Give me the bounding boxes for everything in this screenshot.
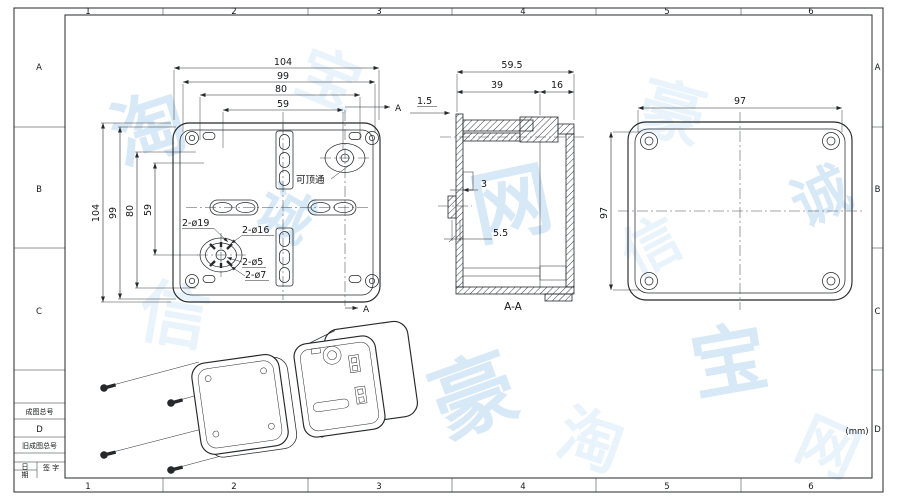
dim-depth-lid: 16 [551, 80, 563, 91]
dim-width-slots: 59 [277, 99, 289, 110]
zone-col-label: 5 [664, 7, 669, 17]
title-block-signature-label: 签 字 [43, 463, 59, 472]
lid-3d [190, 352, 298, 460]
zone-row-label: D [874, 425, 881, 435]
zone-col-label: 3 [376, 482, 381, 492]
zone-ticks-top [163, 8, 741, 15]
zone-col-label: 6 [808, 7, 813, 17]
knockout-note-label: 可顶通 [296, 175, 325, 186]
section-walls [448, 114, 574, 301]
zone-row-label: A [36, 63, 42, 73]
box-3d [291, 320, 420, 440]
zone-col-label: 2 [231, 482, 236, 492]
dim-height-inner: 80 [125, 205, 136, 217]
zone-ticks-sides [14, 127, 883, 370]
dim-back-width: 97 [734, 96, 746, 107]
hole-callout-d7: 2-ø7 [245, 270, 266, 281]
zone-row-label: C [875, 307, 881, 317]
back-view-centerlines [618, 112, 862, 310]
hole-callout-d16: 2-ø16 [242, 225, 269, 236]
title-block-final-no-label: 成图总号 [26, 407, 54, 416]
dim-height-screws: 99 [108, 207, 119, 219]
back-view: 97 97 [599, 96, 862, 310]
section-arrow-label-bottom: A [363, 305, 370, 315]
zone-row-label: A [875, 63, 881, 73]
zone-col-label: 4 [520, 482, 525, 492]
dim-width-inner: 80 [275, 84, 287, 95]
cable-slot-strips [276, 131, 293, 286]
front-view: 可顶通 2-ø19 2-ø16 2-ø5 2-ø7 A [91, 57, 402, 315]
dim-clip: 5.5 [493, 228, 508, 239]
zone-col-label: 1 [85, 482, 90, 492]
dim-height-slots: 59 [143, 204, 154, 216]
dim-depth-body: 39 [491, 80, 503, 91]
title-block-date-label-1: 日 [22, 463, 29, 471]
dim-step: 3 [481, 179, 487, 190]
units-note: (mm) [845, 427, 868, 437]
zone-ticks-bottom [163, 478, 741, 492]
section-view-label: A-A [504, 301, 523, 313]
dim-height-overall: 104 [91, 204, 102, 222]
dim-width-screws: 99 [277, 71, 289, 82]
isometric-exploded-view [99, 320, 420, 475]
zone-col-label: 5 [664, 482, 669, 492]
section-interior-lines [463, 142, 566, 287]
front-view-centerlines [186, 124, 371, 300]
drawing-sheet: 淘 宝 网 豪 诚 信 豪 淘 宝 网 诚 信 [0, 0, 900, 500]
zone-row-label: B [875, 185, 881, 195]
section-arrow-label-top: A [395, 104, 402, 114]
front-view-dims-top: 104 99 80 59 [174, 57, 379, 150]
sheet-frame: 1 2 3 4 5 6 1 2 3 4 5 6 A B C A B C D (m… [14, 7, 883, 492]
title-block: 成图总号 D 旧成图总号 日 期 签 字 [14, 403, 65, 479]
front-view-dims-left: 104 99 80 59 [91, 123, 204, 302]
cad-drawing: 1 2 3 4 5 6 1 2 3 4 5 6 A B C A B C D (m… [0, 0, 900, 500]
section-view: 59.5 39 16 1.5 3 5.5 A-A [410, 60, 585, 313]
dim-back-height: 97 [599, 207, 610, 219]
zone-col-label: 3 [376, 7, 381, 17]
title-block-date-label-2: 期 [22, 471, 29, 479]
title-block-old-no-label: 旧成图总号 [22, 441, 57, 450]
hole-callout-d5: 2-ø5 [242, 257, 263, 268]
dim-depth-overall: 59.5 [501, 60, 522, 71]
zone-row-label: B [36, 185, 42, 195]
dim-wall-thickness: 1.5 [417, 96, 432, 107]
zone-col-label: 4 [520, 7, 525, 17]
mounting-screws [99, 381, 183, 474]
title-block-final-no-value: D [36, 425, 43, 435]
zone-col-label: 2 [231, 7, 236, 17]
zone-col-label: 1 [85, 7, 90, 17]
section-dims: 59.5 39 16 1.5 3 5.5 [410, 60, 574, 242]
zone-col-label: 6 [808, 482, 813, 492]
hole-callout-d19: 2-ø19 [182, 218, 209, 229]
dim-width-overall: 104 [274, 57, 292, 68]
zone-row-label: C [36, 307, 42, 317]
